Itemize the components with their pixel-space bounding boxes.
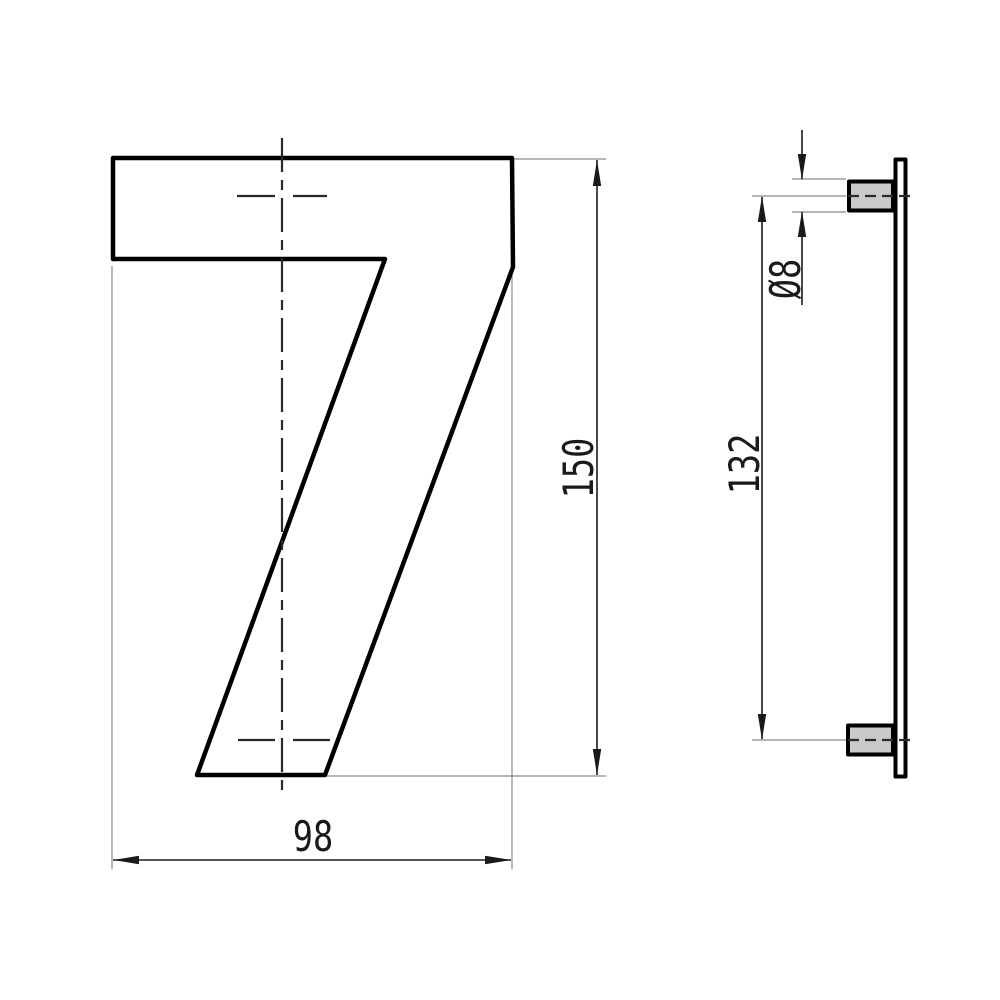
arrow-left-icon — [113, 856, 139, 864]
arrow-up-icon — [758, 196, 766, 222]
dimension-label-peg-spacing: 132 — [720, 434, 769, 495]
arrow-down-icon — [758, 714, 766, 740]
arrow-down-icon — [593, 749, 601, 775]
numeral-7-shape — [113, 158, 513, 775]
dimension-label-peg-diameter: Ø8 — [761, 259, 810, 299]
dimension-label-height: 150 — [554, 438, 603, 499]
dimension-width: 98 — [113, 812, 511, 864]
technical-drawing: 150 98 — [0, 0, 1000, 1000]
arrow-up-icon — [798, 211, 806, 237]
dimension-peg-diameter: Ø8 — [761, 130, 846, 305]
front-view: 150 98 — [112, 138, 606, 869]
dimension-peg-spacing: 132 — [720, 196, 769, 740]
drawing-canvas: 150 98 — [0, 0, 1000, 1000]
side-view: Ø8 132 — [720, 130, 912, 777]
arrow-right-icon — [485, 856, 511, 864]
arrow-up-icon — [593, 160, 601, 186]
dimension-label-width: 98 — [293, 812, 333, 861]
dimension-height: 150 — [554, 160, 603, 775]
arrow-down-icon — [798, 154, 806, 180]
mounting-plate — [896, 160, 906, 777]
